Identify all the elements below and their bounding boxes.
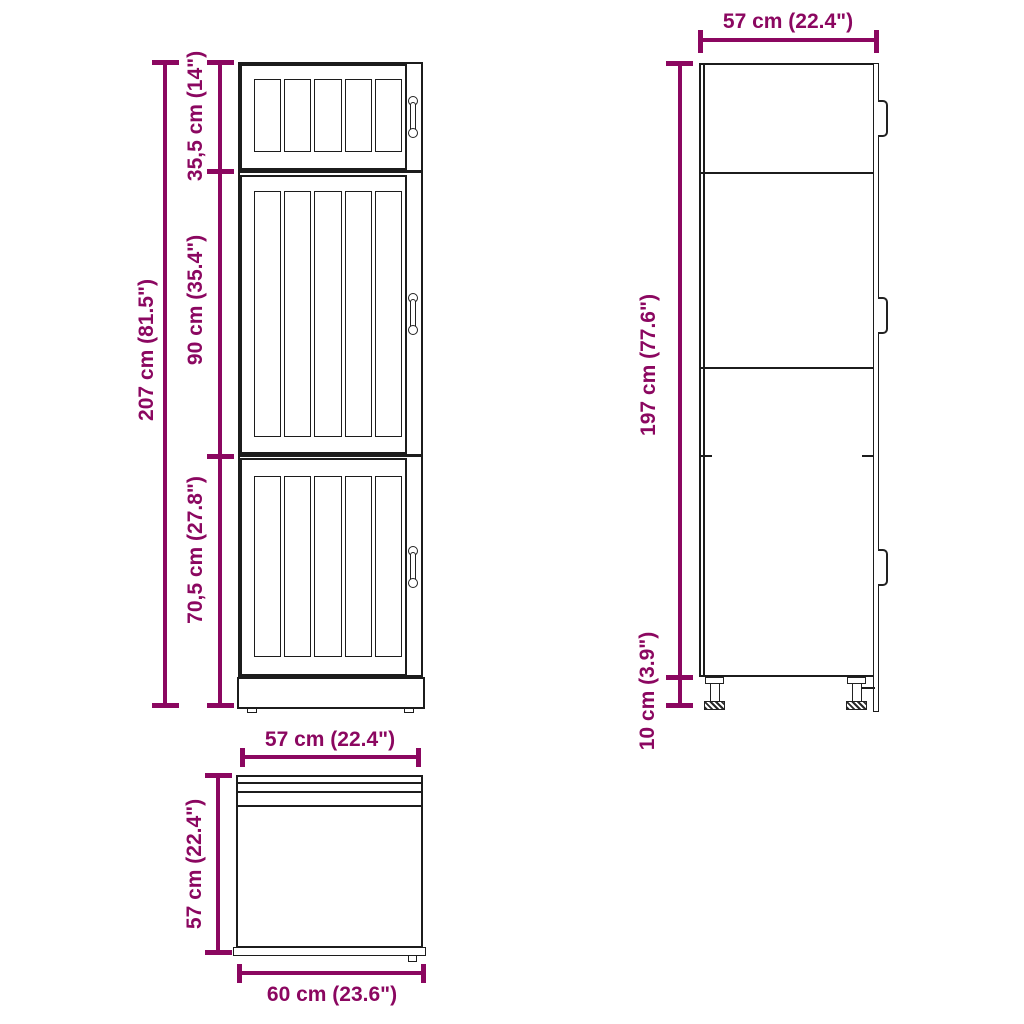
dim-tick [666, 675, 693, 680]
door-board [254, 191, 281, 437]
top-view-overall-width-dim-line [239, 971, 424, 975]
side-rear-leg [704, 677, 726, 711]
side-middle-handle [878, 297, 888, 334]
door-board [284, 476, 311, 657]
side-bottom-handle [878, 549, 888, 586]
dim-tick [207, 60, 234, 65]
door-board [375, 191, 402, 437]
top-view-inner-line-2 [238, 791, 421, 793]
dim-tick [874, 30, 879, 53]
top-view-handle [408, 955, 417, 962]
door-board [345, 476, 372, 657]
side-joint-line-top [699, 172, 875, 174]
side-door-gap-mark-left [699, 455, 712, 457]
side-body-height-dim-label: 197 cm (77.6") [637, 294, 661, 436]
front-middle-door [240, 175, 407, 454]
top-view-body [236, 775, 423, 948]
top-view-door-strip [233, 947, 426, 956]
door-board [345, 191, 372, 437]
side-legs-height-dim-label: 10 cm (3.9") [636, 632, 660, 751]
dim-tick [666, 61, 693, 66]
dim-tick [205, 773, 232, 778]
side-height-dim-line [678, 63, 682, 708]
top-view-depth-dim-line [216, 775, 220, 954]
door-board [314, 476, 341, 657]
side-back-panel-line [703, 63, 705, 677]
dim-tick [416, 748, 421, 767]
leg-foot [704, 701, 725, 710]
front-separator-top [238, 170, 423, 173]
dim-tick [698, 30, 703, 53]
front-bottom-door [240, 458, 407, 676]
side-depth-dim-label: 57 cm (22.4") [723, 10, 853, 34]
front-bottom-section-dim-label: 70,5 cm (27.8") [184, 476, 208, 624]
front-middle-door-panels [254, 191, 402, 437]
front-separator-bottom [238, 454, 423, 457]
side-front-leg [846, 677, 868, 711]
top-door-handle [406, 96, 420, 138]
top-view-inner-line-3 [238, 805, 421, 807]
front-plinth [237, 677, 425, 709]
dim-tick [421, 964, 426, 983]
dim-tick [152, 60, 179, 65]
door-board [314, 191, 341, 437]
side-joint-line-middle [699, 367, 875, 369]
side-depth-dim-line [700, 38, 877, 42]
dim-tick [207, 703, 234, 708]
top-view-body-width-dim-line [242, 755, 419, 759]
dim-tick [207, 169, 234, 174]
front-top-section-dim-label: 35,5 cm (14") [184, 51, 208, 181]
door-board [375, 476, 402, 657]
top-view-overall-width-dim-label: 60 cm (23.6") [267, 983, 397, 1007]
door-board [314, 79, 341, 152]
cabinet-dimension-diagram: 207 cm (81.5") 35,5 cm (14") 90 cm (35.4… [0, 0, 1024, 1024]
side-top-handle [878, 100, 888, 137]
front-top-door-panels [254, 79, 402, 152]
leg-stem [710, 683, 720, 702]
front-bottom-door-panels [254, 476, 402, 657]
door-board [284, 79, 311, 152]
dim-tick [152, 703, 179, 708]
top-view-depth-dim-label: 57 cm (22.4") [183, 799, 207, 929]
door-board [284, 191, 311, 437]
door-board [254, 79, 281, 152]
front-sections-dim-line [218, 62, 222, 708]
handle-screw [408, 578, 418, 588]
dim-tick [240, 748, 245, 767]
dim-tick [666, 703, 693, 708]
handle-screw [408, 325, 418, 335]
front-middle-section-dim-label: 90 cm (35.4") [184, 235, 208, 365]
leg-stem [852, 683, 862, 702]
front-top-door [240, 64, 407, 170]
front-total-height-dim-label: 207 cm (81.5") [135, 279, 159, 421]
dim-tick [237, 964, 242, 983]
front-left-foot [247, 708, 257, 713]
top-view-body-width-dim-label: 57 cm (22.4") [265, 728, 395, 752]
door-board [345, 79, 372, 152]
leg-foot [846, 701, 867, 710]
middle-door-handle [406, 293, 420, 335]
top-view-inner-line-1 [238, 782, 421, 784]
front-right-foot [404, 708, 414, 713]
side-door-front-strip [873, 63, 879, 712]
front-total-dim-line [163, 62, 167, 708]
door-board [375, 79, 402, 152]
handle-screw [408, 128, 418, 138]
dim-tick [207, 454, 234, 459]
door-board [254, 476, 281, 657]
front-leg-brace-line [861, 687, 875, 689]
side-cabinet-body [699, 63, 875, 677]
bottom-door-handle [406, 546, 420, 588]
dim-tick [205, 950, 232, 955]
